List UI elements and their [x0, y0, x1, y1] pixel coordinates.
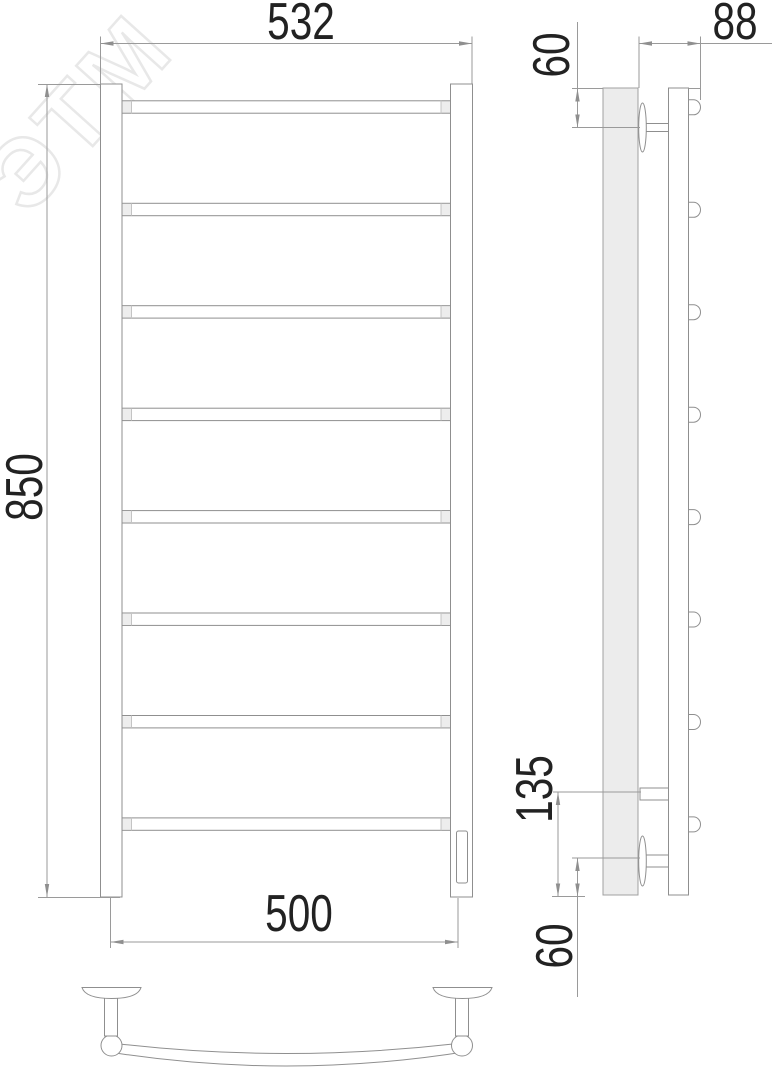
connector-stub	[640, 788, 669, 800]
front-rungs	[122, 101, 451, 831]
towel-rail-drawing: ЭТМ 532	[0, 0, 773, 1080]
bottom-right-flange	[433, 988, 492, 999]
rung-end-collar	[123, 204, 132, 215]
side-rung-tips	[689, 100, 701, 832]
rung-end-collar	[441, 511, 450, 522]
bottom-offset-label: 60	[525, 923, 583, 968]
bottom-left-bracket-stem	[105, 997, 118, 1036]
rung	[122, 306, 451, 318]
bottom-view	[82, 988, 492, 1067]
rung-end-collar	[123, 511, 132, 522]
mount-width-label: 500	[265, 884, 333, 942]
rung	[122, 408, 451, 420]
heating-element-cover	[457, 831, 468, 883]
overall-height-label: 850	[0, 453, 53, 521]
depth-label: 88	[712, 0, 757, 50]
rung-end-collar	[123, 819, 132, 830]
rung-tip-side	[689, 305, 701, 320]
rung-end-collar	[441, 409, 450, 420]
rung	[122, 101, 451, 113]
bottom-bracket-stem	[646, 855, 669, 867]
front-left-post	[101, 84, 123, 897]
rung-tip-side	[689, 202, 701, 217]
rung-tip-side	[689, 407, 701, 422]
top-offset-label: 60	[522, 32, 580, 77]
rung-end-collar	[441, 716, 450, 727]
front-right-post	[451, 84, 473, 897]
rung-end-collar	[123, 409, 132, 420]
rung-tip-side	[689, 612, 701, 627]
rung	[122, 716, 451, 728]
bottom-left-post-end	[101, 1035, 122, 1056]
side-post-profile	[669, 88, 689, 895]
rung-end-collar	[123, 306, 132, 317]
rung-end-collar	[441, 306, 450, 317]
rung	[122, 511, 451, 523]
rung-end-collar	[441, 102, 450, 113]
rung-tip-side	[689, 817, 701, 832]
rung-end-collar	[123, 614, 132, 625]
side-view	[603, 88, 701, 895]
wall-strip	[603, 88, 638, 895]
element-height-label: 135	[505, 755, 563, 823]
front-view	[101, 84, 473, 897]
rung	[122, 613, 451, 625]
overall-width-label: 532	[267, 0, 335, 50]
bottom-right-post-end	[452, 1035, 473, 1056]
rung-end-collar	[441, 614, 450, 625]
bottom-bracket-flange	[639, 836, 647, 886]
drawing-canvas: ЭТМ 532	[0, 0, 773, 1080]
watermark-text: ЭТМ	[0, 0, 194, 232]
bottom-right-bracket-stem	[456, 997, 469, 1036]
dimension-88: 88	[639, 0, 772, 100]
rung-tip-side	[689, 510, 701, 525]
bottom-left-flange	[82, 988, 141, 999]
rung	[122, 818, 451, 830]
rung-tip-side	[689, 100, 701, 115]
dimension-500: 500	[111, 884, 459, 948]
rung-end-collar	[441, 204, 450, 215]
rung	[122, 203, 451, 215]
rung-end-collar	[123, 102, 132, 113]
top-bracket-stem	[646, 124, 669, 132]
rung-end-collar	[123, 716, 132, 727]
rung-end-collar	[441, 819, 450, 830]
rung-tip-side	[689, 715, 701, 730]
